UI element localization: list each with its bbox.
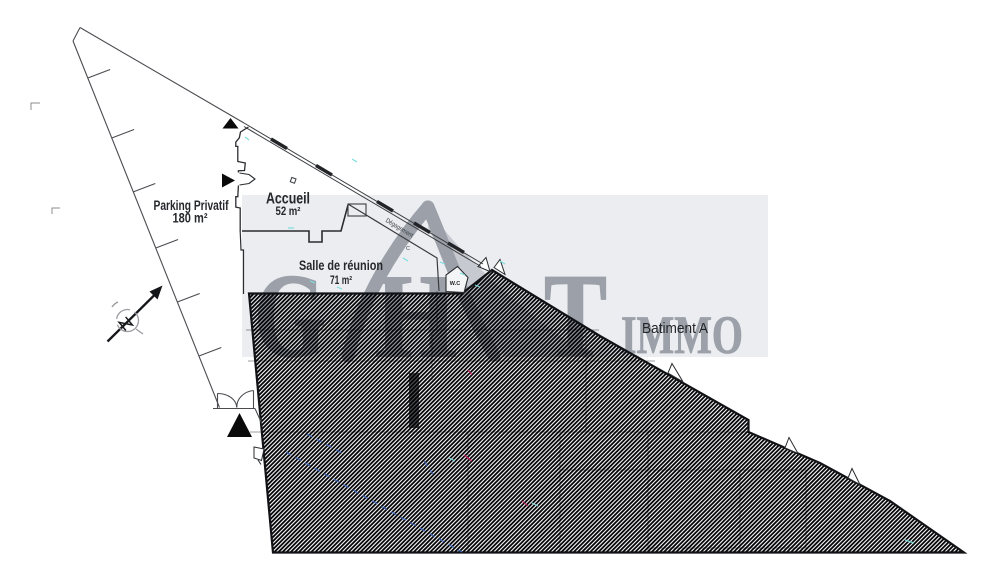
svg-text:W.C: W.C [450, 281, 460, 287]
svg-text:Batiment A: Batiment A [642, 321, 708, 337]
svg-text:71 m²: 71 m² [330, 275, 352, 287]
svg-text:Salle de réunion: Salle de réunion [299, 257, 383, 273]
svg-text:C: C [406, 246, 410, 252]
svg-text:180 m²: 180 m² [173, 211, 208, 226]
svg-text:Accueil: Accueil [266, 191, 310, 208]
svg-text:52 m²: 52 m² [276, 206, 301, 218]
